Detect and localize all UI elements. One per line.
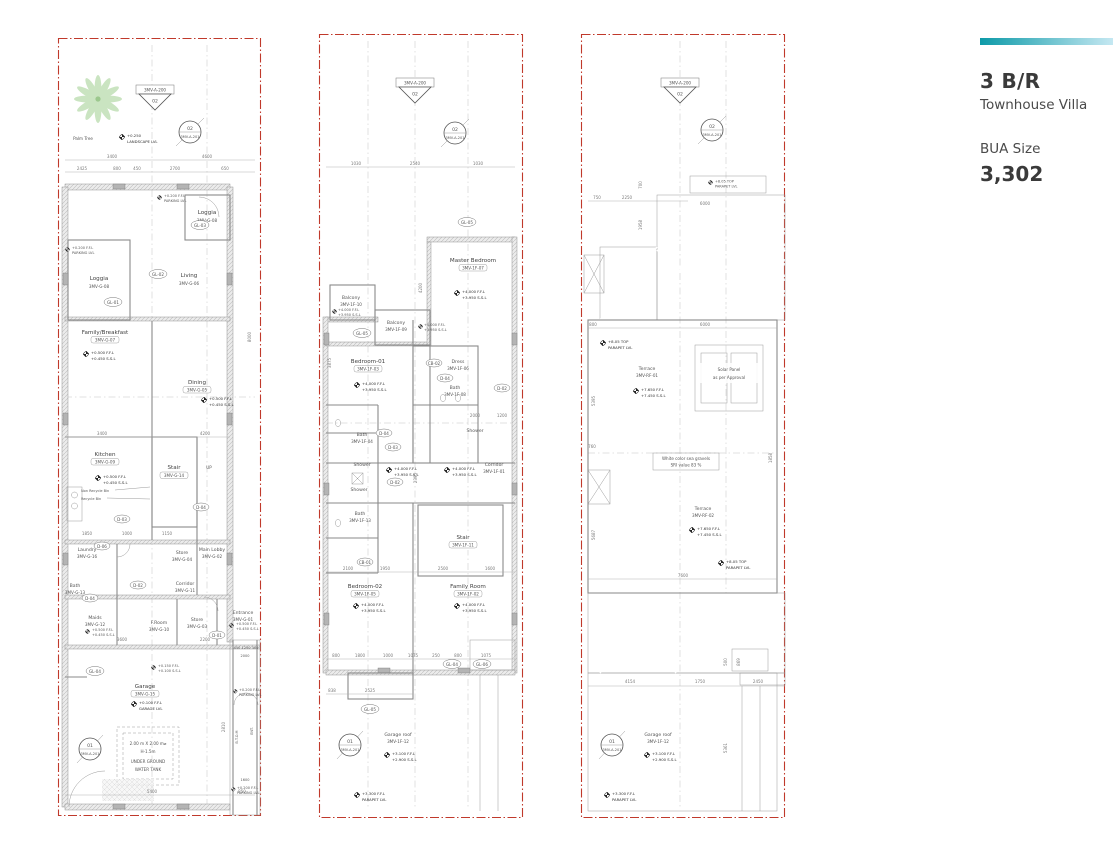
dimension-row-top: 1030 2540 1030 [326,161,515,167]
level-label: PARAPET LVL [362,797,387,802]
tag: D-01 [212,633,222,638]
level-value: +0.500 F.F.L [91,350,115,355]
section-marker: 3MV-A-200 02 [136,85,174,110]
level-value: +3.950 S.S.L [462,608,487,613]
room-code: 3MV-G-16 [77,554,98,559]
bath-fixtures [335,394,460,526]
room-label: Balcony [342,295,360,301]
room-label: Terrace [694,506,712,512]
level-value: +2.900 S.S.L [652,757,677,762]
detail-ref: 3MV-A-201 [341,748,360,752]
room-label: Store [176,550,188,556]
palm-tree-label: Palm Tree [73,136,93,141]
level-value: +0.500 F.F.L [236,622,257,626]
dim-label: 1800 [355,653,366,658]
grid-centerlines [588,41,777,808]
tag: D-04 [379,431,389,436]
kitchen-fixtures [67,487,82,521]
tag: D-06 [97,544,107,549]
room-label: Bedroom-01 [351,359,386,365]
dim-label: 3400 [97,431,108,436]
dim-label: 500 [723,658,728,666]
room-code: 3MV-1F-02 [457,592,479,597]
dim-label: 450 [133,166,141,171]
room-code: 3MV-1F-06 [447,366,469,371]
dim-label: 800 [113,166,121,171]
level-value: +0.450 S.S.L [103,480,128,485]
room-label: Stair [456,535,470,541]
room-code: 3MV-G-11 [175,588,196,593]
stair [152,437,197,527]
up-note: UP [206,465,212,470]
room-label: Shower [350,487,367,493]
level-value: +0.200 F.F.L [239,688,260,692]
dim-label: 760 [588,444,596,449]
palm-tree [74,75,122,123]
level-label: PARAPET LVL [608,345,633,350]
level-value: +3.950 S.S.L [462,295,487,300]
tag: D-03 [117,517,127,522]
dim-label: 2525 [365,688,376,693]
room-label: Kitchen [94,452,115,458]
tag: CB-01 [359,560,372,565]
room-labels: Loggia 3MV-G-08 Loggia 3MV-G-08 Living 3… [65,210,254,697]
room-label: Stair [167,465,181,471]
section-marker: 3MV-A-200 02 [661,78,699,103]
room-code: 3MV-1F-05 [354,592,376,597]
dim-label: 1075 [481,653,492,658]
section-num: 02 [152,99,158,105]
dim-label: 300 [252,646,259,650]
level-label: PARKING LVL [239,693,261,697]
level-label: GARAGE LVL [139,706,163,711]
detail-ref: 3MV-A-201 [446,136,465,140]
detail-ref: 3MV-A-201 [81,752,100,756]
dim-label: 2450 [753,679,764,684]
level-value: +0.200 F.F.L [164,194,185,198]
detail-num: 01 [87,743,93,749]
room-code: 3MV-RF-01 [636,373,658,378]
room-label: F.Room [151,620,168,626]
dim-label: 7600 [678,573,689,578]
tag: GL-06 [476,662,488,667]
section-num: 02 [412,92,418,98]
dim-label: 1030 [351,161,362,166]
roof-hatch-bottom: 500 869 [588,593,785,811]
level-value: +7.650 F.F.L [641,387,665,392]
level-value: +0.450 S.S.L [209,402,234,407]
level-value: +0.450 S.S.L [236,627,259,631]
level-label: PARKING LVL [72,251,94,255]
dim-label: 1250 [242,646,251,650]
labels: Terrace 3MV-RF-01 Terrace 3MV-RF-02 Gara… [636,366,714,744]
first-floor-plan: 3MV-A-200 02 02 3MV-A-201 1030 2540 1030 [318,33,524,819]
bua-size-value: 3,302 [980,162,1113,186]
level-value: +0.500 F.F.L [92,628,113,632]
detail-marker-top: 02 3MV-A-201 [176,118,204,146]
level-value: +4.000 F.F.L [338,308,359,312]
room-label: Maids [88,615,102,621]
dim-label: 2250 [622,195,633,200]
dim-label: 2000 [241,654,250,658]
dim-label: 5687 [591,529,596,540]
room-code: 3MV-1F-10 [340,302,362,307]
room-code: 3MV-G-14 [164,473,185,478]
level-value: +0.100 S.S.L [158,669,181,673]
room-code: 3MV-G-06 [179,281,200,286]
tag: D-02 [390,480,400,485]
tag: GL-05 [364,707,376,712]
room-label: Garage roof [644,732,672,738]
level-label: PARAPET LVL [612,797,637,802]
level-value: +3.950 S.S.L [452,472,477,477]
tag: D-04 [85,596,95,601]
landscape-level-marker: +0.250 LANDSCAPE LVL [119,133,158,144]
level-label: LANDSCAPE LVL [127,139,158,144]
room-label: Living [181,273,198,279]
tag: GL-04 [446,662,458,667]
dim-label: 1958 [638,219,643,230]
level-value: +7.450 S.S.L [697,532,722,537]
detail-num: 01 [609,739,615,745]
room-code: 3MV-G-03 [187,624,208,629]
top-parapet-box: +8.05 TOP PARAPET LVL [690,176,766,193]
level-value: +0.500 F.F.L [209,396,233,401]
level-value: +8.05 TOP [715,180,734,184]
room-label: Entrance [233,610,254,616]
level-value: +0.450 S.S.L [91,356,116,361]
dim-label: 5395 [591,395,596,406]
accent-bar [980,38,1113,45]
dim-label: 3400 [107,154,118,159]
dim-label: 8000 [247,331,252,342]
room-label: Bath [450,385,461,391]
level-value: +2.900 S.S.L [392,757,417,762]
dim-label: 250 [432,653,440,658]
room-label: Garage roof [384,732,412,738]
dim-label: 2500 [438,566,449,571]
dim-label: 6000 [700,201,711,206]
room-code: 3MV-1F-04 [351,439,373,444]
level-value: +3.300 F.F.L [612,791,636,796]
dim-label: 1030 [473,161,484,166]
room-label: Bath [357,432,368,438]
room-code: 3MV-G-12 [85,622,106,627]
level-label: PARKING LVL [164,199,186,203]
note: SRI value 83 % [671,463,702,468]
water-tank: 2.00 m X 2.00 m⌀ H-1.5m UNDER GROUND WAT… [117,727,179,785]
bua-size-label: BUA Size [980,141,1113,157]
room-label: Corridor [485,462,504,468]
dim-label: 2540 [410,161,421,166]
room-label: Bedroom-02 [348,584,382,590]
room-label: Dress [452,359,466,365]
dim-label: 5361 [723,742,728,753]
room-code: 3MV-G-05 [187,388,208,393]
room-label: Store [191,617,203,623]
dim-label: 1200 [497,413,508,418]
dimension-row-top: 3400 4600 2425 800 450 2700 650 [65,154,255,172]
dim-label: 2100 [343,566,354,571]
room-label: Terrace [638,366,656,372]
tag: CB-02 [428,361,441,366]
section-ref: 3MV-A-200 [404,81,426,86]
room-code: 3MV-1F-01 [483,469,505,474]
detail-num: 02 [187,126,193,132]
note: UNDER GROUND [131,759,165,764]
tag: GL-05 [356,331,368,336]
room-code: 3MV-G-10 [149,627,170,632]
room-code: 3MV-1F-09 [385,327,407,332]
note: Recycle Bin [81,497,101,501]
dim-label: 450 [234,646,241,650]
dim-label: 6000 [700,322,711,327]
unit-type-title: 3 B/R [980,69,1113,93]
level-value: +3.100 F.F.L [652,751,676,756]
room-label: Bath [70,583,81,589]
tag: GL-03 [194,223,206,228]
tag: GL-01 [107,300,119,305]
dim-label: 2425 [77,166,88,171]
dim-label: 750 [593,195,601,200]
level-value: +0.250 [127,133,142,138]
dim-label: 1600 [241,778,250,782]
room-label: Loggia [90,276,109,282]
tag: D-03 [388,445,398,450]
bin-notes: Non Recycle Bin Recycle Bin [81,487,150,501]
level-value: +4.000 F.F.L [394,466,418,471]
level-value: +4.000 F.F.L [362,381,386,386]
roof-plan: 3MV-A-200 02 02 3MV-A-201 +8.05 TOP PARA… [580,33,786,819]
room-label: Main Lobby [199,547,226,553]
dim-label: 2395 [413,472,418,483]
note: B.T.O.M [235,730,239,743]
level-value: +0.200 F.F.L [72,246,93,250]
room-code: 3MV-G-07 [95,338,116,343]
info-panel: 3 B/R Townhouse Villa BUA Size 3,302 [980,38,1113,186]
level-value: +4.000 F.F.L [452,466,476,471]
detail-marker-top: 02 3MV-A-201 [698,116,726,144]
gravel-note: White color sea gravels SRI value 83 % [653,453,719,470]
room-label: Master Bedroom [450,258,496,264]
level-value: +3.950 S.S.L [362,387,387,392]
level-value: +8.05 TOP [608,339,629,344]
level-value: +3.950 S.S.L [424,328,447,332]
room-label: Family Room [450,584,486,590]
room-label: Shower [466,428,483,434]
room-label: Corridor [176,581,195,587]
dim-label: 1750 [695,679,706,684]
section-marker: 3MV-A-200 02 [396,78,434,103]
tag: D-02 [497,386,507,391]
detail-ref: 3MV-A-201 [603,748,622,752]
detail-num: 02 [452,127,458,133]
room-code: 3MV-G-09 [95,460,116,465]
room-code: 3MV-1F-12 [387,739,409,744]
level-label: PARAPET LVL [726,565,751,570]
room-code: 3MV-G-08 [89,284,110,289]
plot-boundary [320,35,523,818]
tag: D-02 [133,583,143,588]
dim-label: 650 [221,166,229,171]
dim-label: 5400 [147,789,158,794]
level-value: +3.300 F.F.L [362,791,386,796]
dim-label: 4154 [625,679,636,684]
tag: D-04 [196,505,206,510]
level-value: +7.450 S.S.L [641,393,666,398]
unit-type-subtitle: Townhouse Villa [980,97,1113,113]
level-value: +4.000 F.F.L [361,602,385,607]
room-code: 3MV-G-13 [65,590,86,595]
tag: GL-02 [152,272,164,277]
level-value: +8.05 TOP [726,559,747,564]
room-code: 3MV-1F-08 [444,392,466,397]
room-code: 3MV-1F-11 [452,543,474,548]
grid-centerlines [65,45,255,809]
section-ref: 3MV-A-200 [669,81,691,86]
dim-label: 1850 [82,531,93,536]
dim-label: 1950 [380,566,391,571]
note: ENT. [250,727,254,735]
dim-label: 1000 [383,653,394,658]
level-value: +4.000 F.F.L [462,289,486,294]
level-value: +7.650 F.F.L [697,526,721,531]
detail-ref: 3MV-A-201 [181,135,200,139]
dim-label: 1150 [162,531,173,536]
section-ref: 3MV-A-200 [144,88,166,93]
note: H-1.5m [140,749,155,754]
room-label: Bath [355,511,366,517]
level-value: +0.450 S.S.L [92,633,115,637]
room-code: 3MV-G-02 [202,554,223,559]
dim-label: 1000 [122,531,133,536]
dim-label: 4200 [418,282,423,293]
note: 2.00 m X 2.00 m⌀ [130,741,167,746]
solar-panel-label: as per Approval [713,375,745,380]
dim-label: 800 [332,653,340,658]
dim-label: 800 [589,322,597,327]
dim-label: 1858 [768,452,773,463]
dim-label: 2810 [221,721,226,732]
note: WATER TANK [135,767,162,772]
detail-marker-bottom: 01 3MV-A-201 [77,735,103,763]
detail-num: 02 [709,124,715,130]
plot-boundary [582,35,785,818]
roof-hatch-top [600,195,785,320]
dim-label: 3875 [327,357,332,368]
tag: D-04 [440,376,450,381]
grid-centerlines [326,41,515,808]
detail-marker-top: 02 3MV-A-201 [441,119,469,147]
level-value: +0.500 F.F.L [103,474,127,479]
room-label: Dining [188,380,207,386]
detail-ref: 3MV-A-201 [703,133,722,137]
dimension-row-top: 750 2250 6000 [588,195,711,206]
room-label: Shower [353,462,370,468]
note: Non Recycle Bin [81,489,109,493]
room-code: 3MV-G-04 [172,557,193,562]
room-code: 3MV-G-15 [135,692,156,697]
detail-marker-bottom: 01 3MV-A-201 [599,731,625,759]
room-code: 3MV-1F-13 [349,518,371,523]
room-label: Garage [135,684,156,690]
level-value: +0.150 F.F.L [158,664,179,668]
room-label: Laundry [78,547,97,553]
room-code: 3MV-1F-07 [462,266,484,271]
dim-label: 2200 [200,637,211,642]
dim-label: 850 [238,789,246,794]
level-value: +4.000 F.F.L [424,323,445,327]
tag: GL-04 [89,669,101,674]
level-value: +3.950 S.S.L [338,313,361,317]
solar-panel-label: Solar Panel [718,367,741,372]
solar-panel: Solar Panel as per Approval [695,345,763,411]
room-label: Loggia [198,210,217,216]
level-value: +3.950 S.S.L [361,608,386,613]
section-num: 02 [677,92,683,98]
ground-floor-plan: Palm Tree 3MV-A-200 02 02 3MV-A-201 +0.2… [57,37,263,818]
dim-label: 838 [328,688,336,693]
dim-label: 3600 [117,637,128,642]
level-value: +4.000 F.F.L [462,602,486,607]
dim-label: 4600 [202,154,213,159]
drawing-sheet: Palm Tree 3MV-A-200 02 02 3MV-A-201 +0.2… [0,0,1119,850]
dim-label: 1600 [485,566,496,571]
dim-label: 800 [454,653,462,658]
dim-label: 2000 [470,413,481,418]
tag: GL-05 [461,220,473,225]
dim-label: 4200 [200,431,211,436]
level-value: +3.100 F.F.L [392,751,416,756]
dim-label: 1075 [408,653,419,658]
room-code: 3MV-RF-02 [692,513,714,518]
level-label: PARAPET LVL [715,185,737,189]
note: White color sea gravels [662,456,710,461]
dim-label: 869 [736,658,741,666]
dim-label: 700 [638,181,643,189]
detail-marker-bottom: 01 3MV-A-201 [337,731,363,759]
level-value: +0.100 F.F.L [139,700,163,705]
detail-num: 01 [347,739,353,745]
room-code: 3MV-1F-12 [647,739,669,744]
room-label: Balcony [387,320,405,326]
room-code: 3MV-1F-03 [357,367,379,372]
room-label: Family/Breakfast [82,330,129,336]
dim-label: 2700 [170,166,181,171]
level-markers: +8.05 TOP PARAPET LVL +7.650 F.F.L +7.45… [600,339,751,802]
